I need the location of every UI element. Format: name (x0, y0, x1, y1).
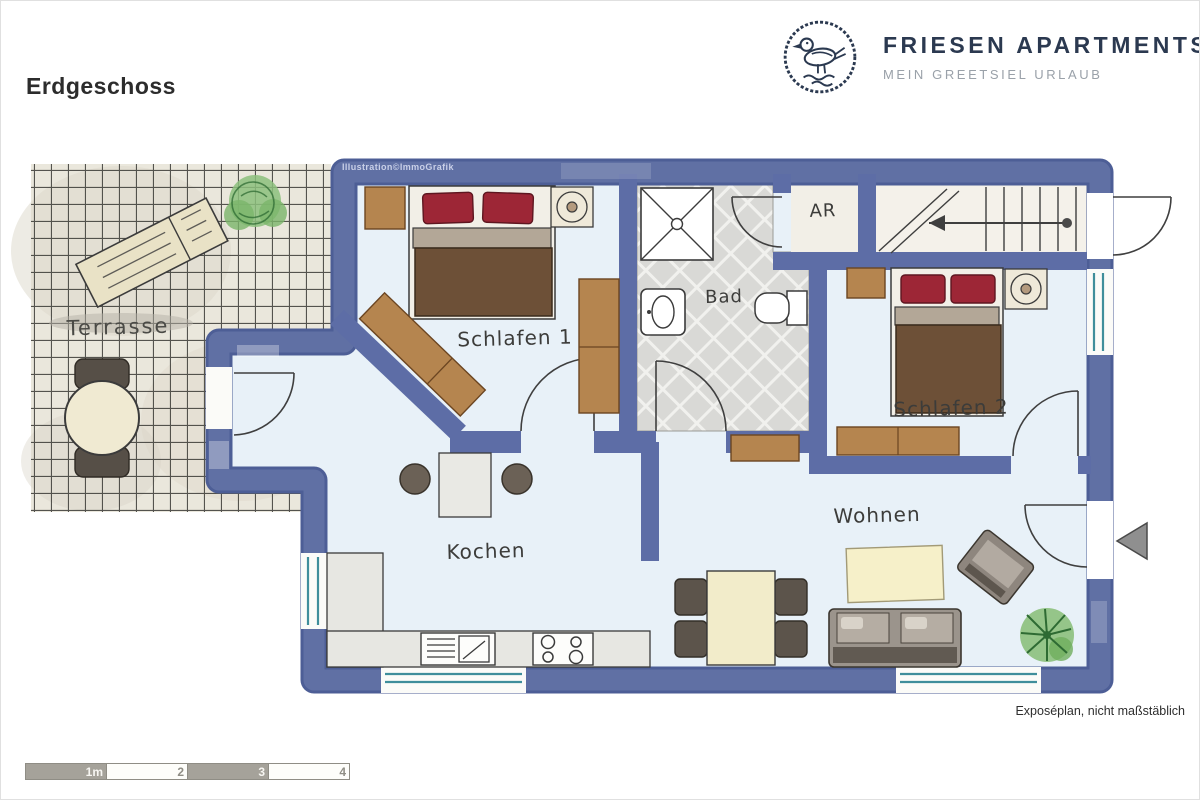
terrace-door-opening (206, 367, 232, 429)
side-table-bedroom1 (551, 187, 593, 227)
bar-stool (400, 464, 430, 494)
floorplan-drawing (1, 1, 1200, 800)
stairs-floor (876, 185, 1087, 252)
room-label-schlafen1: Schlafen 1 (457, 324, 573, 351)
brand-name: FRIESEN APARTMENTS (883, 32, 1200, 59)
brand-tagline: MEIN GREETSIEL URLAUB (883, 67, 1200, 82)
room-label-terrasse: Terrasse (66, 314, 169, 341)
rug (846, 545, 944, 602)
scale-segment: 3 (187, 763, 269, 780)
living-plant (1020, 608, 1074, 662)
sink (641, 289, 685, 335)
sofa (829, 609, 961, 667)
entrance-arrow (1117, 523, 1147, 559)
brand-header: FRIESEN APARTMENTS MEIN GREETSIEL URLAUB (779, 16, 1200, 98)
room-label-schlafen2: Schlafen 2 (893, 394, 1009, 421)
scale-segment: 1m (25, 763, 107, 780)
scale-segment: 2 (106, 763, 188, 780)
scale-label-1m: 1m (86, 765, 103, 779)
footnote: Exposéplan, nicht maßstäblich (1015, 704, 1185, 718)
brand-text: FRIESEN APARTMENTS MEIN GREETSIEL URLAUB (883, 32, 1200, 82)
dining-table (707, 571, 775, 665)
floorplan-page: Erdgeschoss FRIESEN APARTMENTS MEIN GREE… (0, 0, 1200, 800)
dining-chair (675, 621, 707, 657)
room-label-bad: Bad (705, 286, 743, 308)
entrance-door-opening (1087, 501, 1113, 579)
exterior-door-opening (1087, 193, 1113, 259)
dining-chair (675, 579, 707, 615)
toilet (755, 291, 807, 325)
illustration-watermark: Illustration©ImmoGrafik (342, 162, 454, 172)
kitchen-sink-unit (421, 633, 495, 665)
room-label-kochen: Kochen (446, 538, 526, 564)
room-label-ar: AR (809, 200, 836, 222)
terrace-table-set (65, 359, 139, 477)
scale-segment: 4 (268, 763, 350, 780)
scale-label-2: 2 (177, 765, 184, 779)
room-label-wohnen: Wohnen (833, 502, 921, 528)
scale-label-4: 4 (339, 765, 346, 779)
seagull-icon (779, 16, 861, 98)
railing-post (1062, 218, 1072, 228)
bar-stool (502, 464, 532, 494)
exterior-door-arc (1113, 197, 1171, 255)
bed-bedroom2 (891, 268, 1003, 416)
side-table-bedroom2 (1005, 269, 1047, 309)
sideboard-bedroom2 (837, 427, 959, 455)
storage-floor (791, 185, 867, 261)
scale-label-3: 3 (258, 765, 265, 779)
dining-chair (775, 621, 807, 657)
sideboard-living (731, 435, 799, 461)
wardrobe-tall-bedroom1 (579, 279, 619, 413)
scale-bar: 1m 2 3 4 (26, 763, 350, 780)
nightstand-bedroom2 (847, 268, 885, 298)
shower (641, 188, 713, 260)
dining-chair (775, 579, 807, 615)
floor-title: Erdgeschoss (26, 73, 176, 100)
nightstand-bedroom1 (365, 187, 405, 229)
stove (533, 633, 593, 665)
bed-bedroom1 (409, 186, 555, 319)
